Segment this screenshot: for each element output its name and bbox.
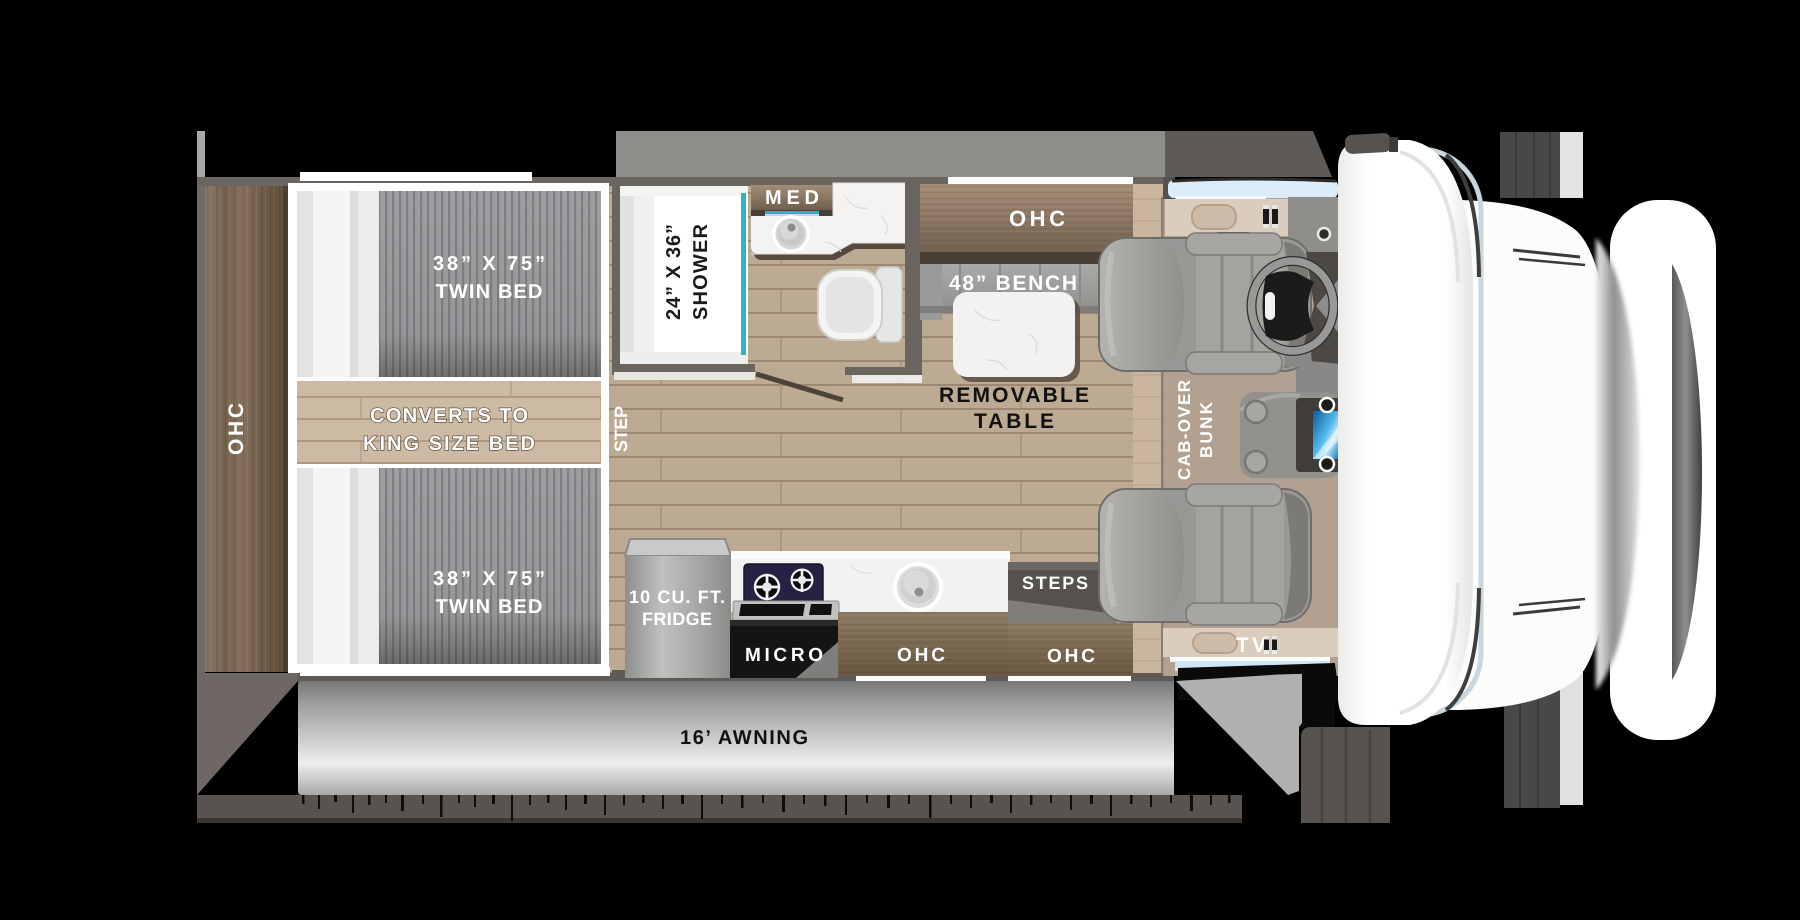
svg-text:OHC: OHC (1047, 646, 1095, 667)
svg-text:10 CU. FT.: 10 CU. FT. (629, 587, 725, 607)
svg-text:38” X 75”: 38” X 75” (433, 568, 545, 590)
svg-text:TWIN BED: TWIN BED (436, 596, 543, 618)
svg-text:BUNK: BUNK (1197, 401, 1216, 458)
svg-text:STEPS: STEPS (1022, 573, 1088, 593)
svg-text:TWIN BED: TWIN BED (436, 281, 543, 303)
svg-text:16’ AWNING: 16’ AWNING (680, 727, 808, 749)
svg-text:OHC: OHC (1009, 206, 1065, 231)
svg-text:OHC: OHC (897, 645, 945, 666)
svg-text:STEP: STEP (611, 406, 631, 452)
svg-text:SHOWER: SHOWER (690, 223, 712, 320)
svg-text:OHC: OHC (225, 403, 248, 455)
svg-text:MICRO: MICRO (745, 645, 823, 666)
svg-text:24” X 36”: 24” X 36” (663, 224, 685, 320)
svg-text:CONVERTS TO: CONVERTS TO (370, 405, 528, 427)
svg-text:TV: TV (1236, 634, 1266, 657)
svg-text:CAB-OVER: CAB-OVER (1175, 380, 1194, 480)
svg-text:FRIDGE: FRIDGE (642, 609, 712, 629)
svg-text:KING SIZE BED: KING SIZE BED (363, 433, 535, 455)
svg-text:REMOVABLE: REMOVABLE (939, 384, 1089, 407)
svg-text:38” X 75”: 38” X 75” (433, 253, 545, 275)
svg-text:MED: MED (765, 187, 819, 209)
svg-text:48” BENCH: 48” BENCH (949, 272, 1077, 295)
